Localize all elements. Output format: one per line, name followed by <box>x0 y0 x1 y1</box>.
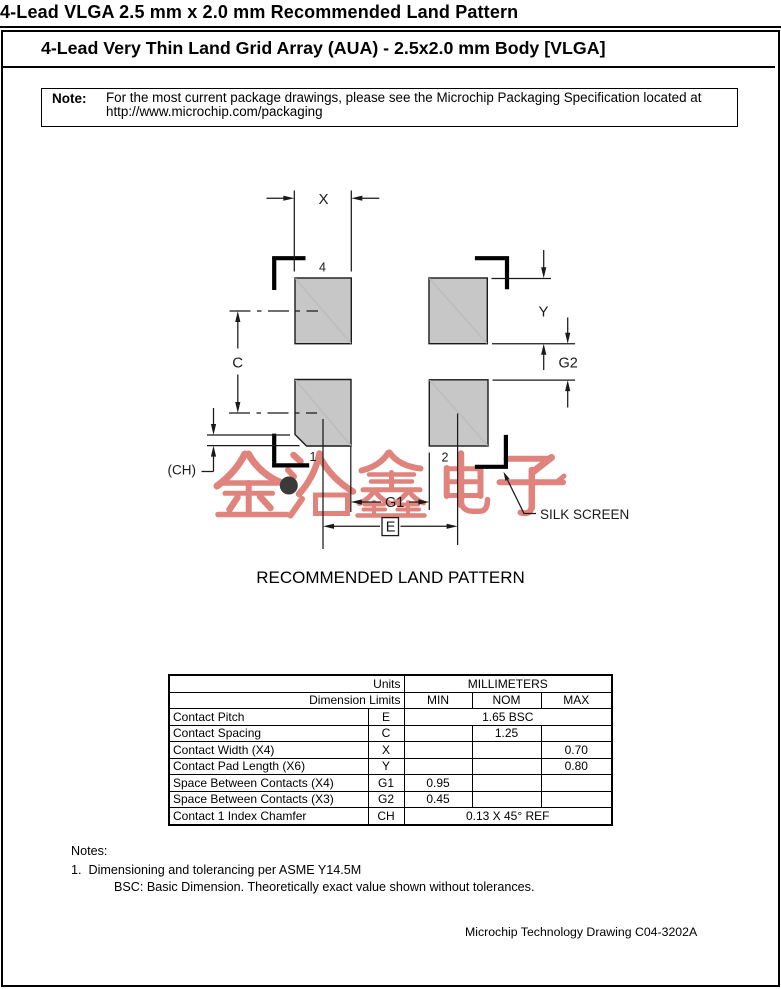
svg-text:G1: G1 <box>385 495 404 511</box>
svg-text:C: C <box>232 355 243 372</box>
svg-text:1: 1 <box>310 450 317 464</box>
svg-text:X: X <box>319 191 329 208</box>
svg-text:G2: G2 <box>559 356 578 372</box>
svg-text:4: 4 <box>319 261 326 275</box>
svg-text:E: E <box>386 520 396 536</box>
svg-text:Y: Y <box>539 304 549 321</box>
svg-text:2: 2 <box>442 451 449 465</box>
svg-text:(CH): (CH) <box>168 463 197 478</box>
svg-text:SILK SCREEN: SILK SCREEN <box>540 507 629 522</box>
